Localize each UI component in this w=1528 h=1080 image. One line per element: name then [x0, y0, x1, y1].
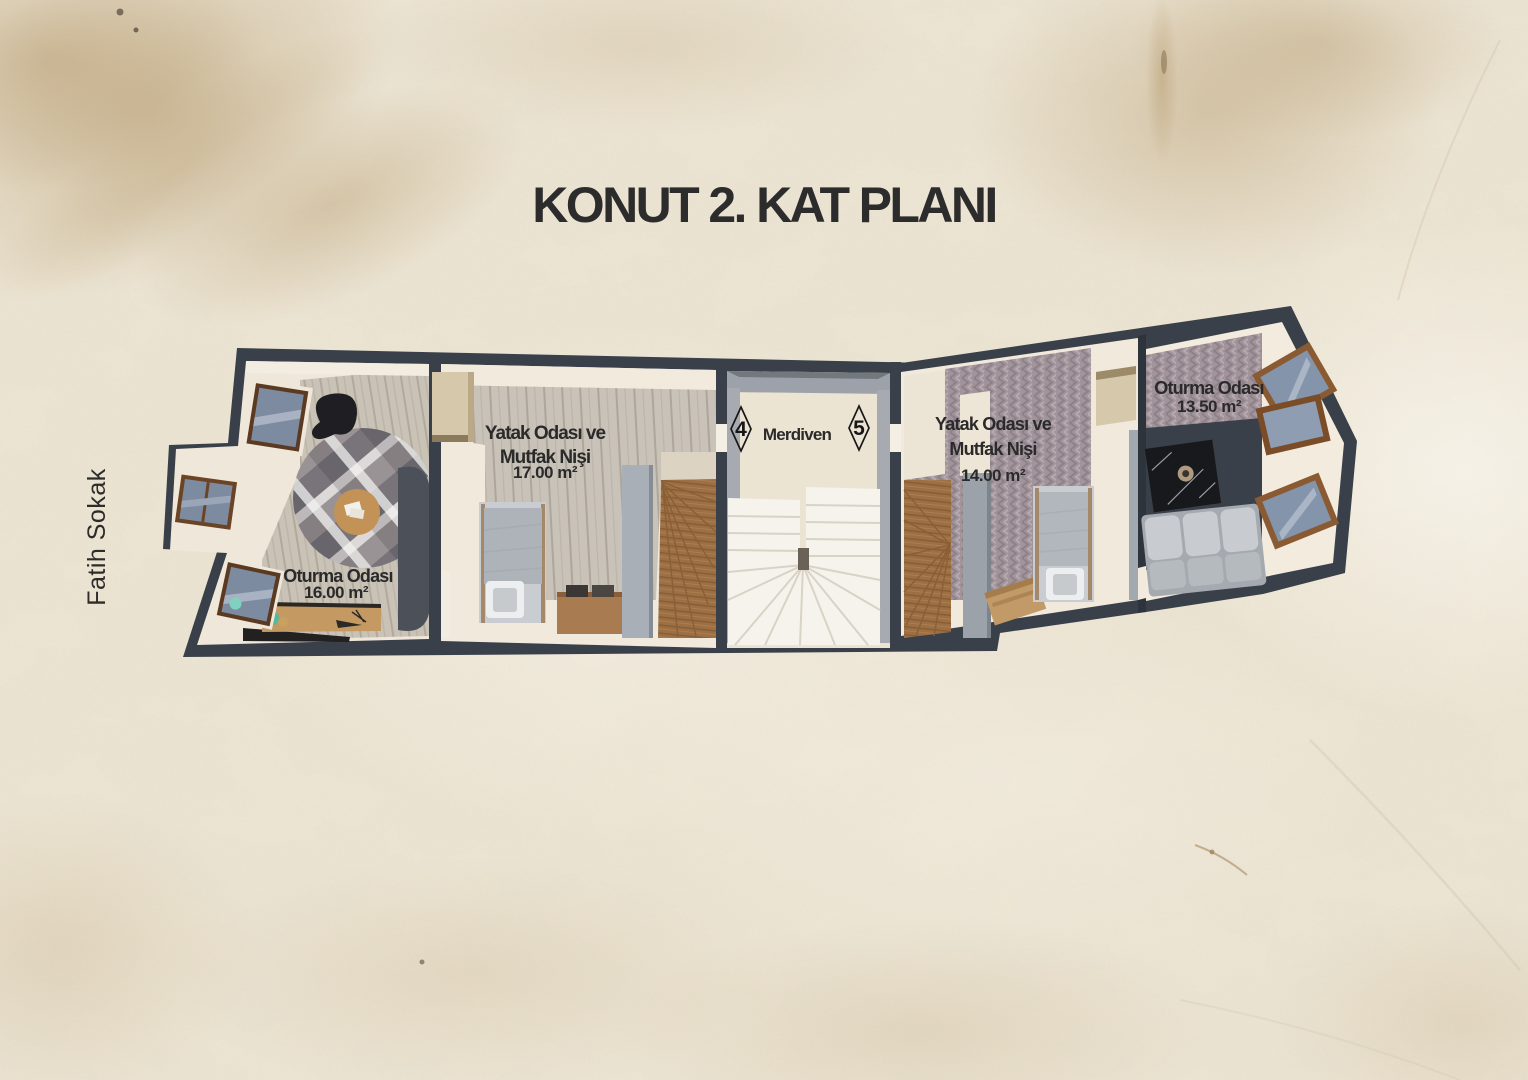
svg-text:Fatih Sokak: Fatih Sokak: [83, 468, 111, 606]
svg-text:Yatak Odası ve: Yatak Odası ve: [935, 414, 1052, 434]
svg-text:4: 4: [735, 418, 747, 441]
svg-text:14.00 m²: 14.00 m²: [961, 466, 1026, 485]
svg-text:17.00 m²: 17.00 m²: [513, 463, 578, 482]
svg-text:Mutfak Nişi: Mutfak Nişi: [949, 439, 1036, 459]
svg-text:Oturma Odası: Oturma Odası: [1154, 378, 1263, 398]
svg-text:13.50 m²: 13.50 m²: [1177, 397, 1242, 416]
svg-text:5: 5: [853, 417, 865, 440]
svg-text:16.00 m²: 16.00 m²: [304, 583, 369, 602]
svg-text:Merdiven: Merdiven: [763, 425, 832, 444]
svg-text:Yatak Odası ve: Yatak Odası ve: [485, 423, 606, 444]
